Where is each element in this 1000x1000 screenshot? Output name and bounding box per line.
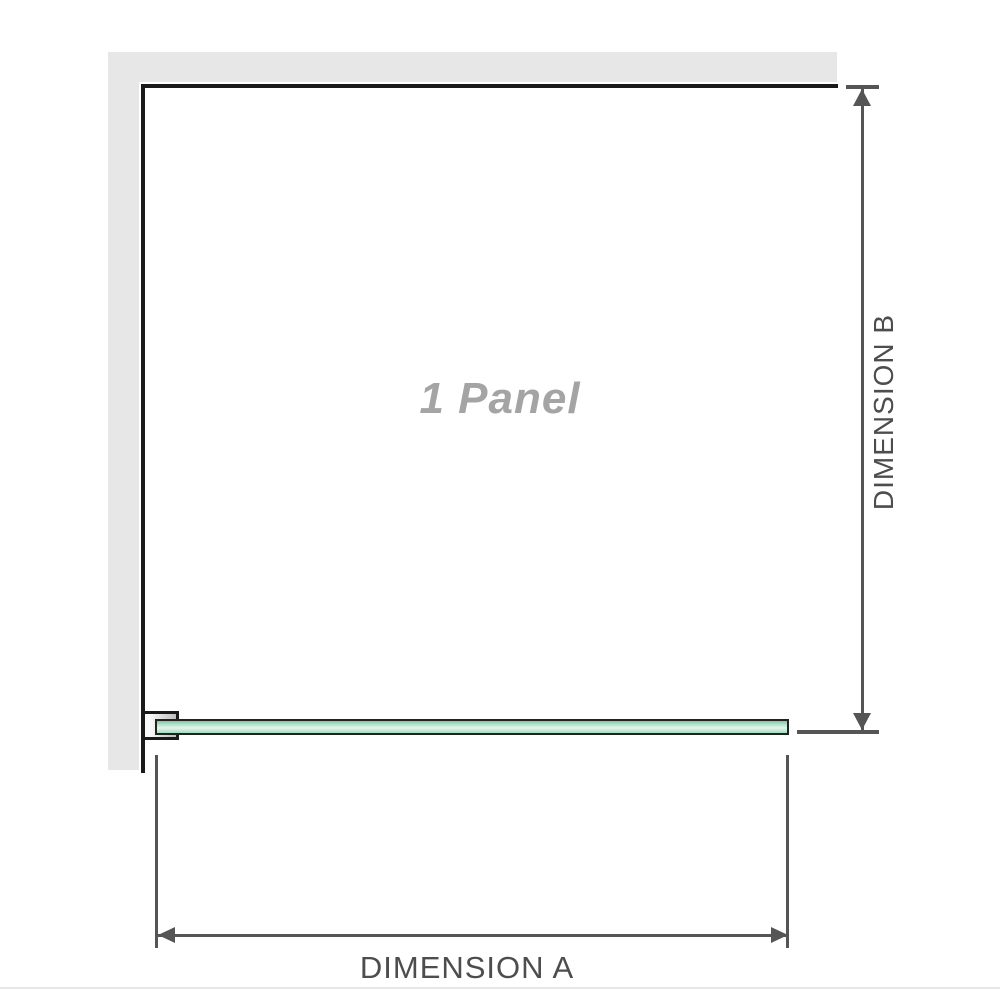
- dimension-a-right-extension-line: [786, 755, 789, 948]
- dimension-b-bottom-tick: [797, 730, 879, 734]
- panel-count-watermark: 1 Panel: [419, 374, 580, 424]
- panel-frame-left-edge: [141, 84, 145, 773]
- arrow-up-icon: [853, 89, 871, 106]
- panel-frame-top-edge: [141, 84, 838, 88]
- glass-panel: [155, 719, 789, 735]
- dimension-a-left-extension-line: [155, 755, 158, 948]
- wall-left: [108, 52, 139, 770]
- arrow-down-icon: [853, 713, 871, 730]
- arrow-left-icon: [158, 927, 175, 943]
- shower-panel-diagram: 1 Panel DIMENSION B DIMENSION A: [0, 0, 1000, 1000]
- bottom-divider: [0, 987, 1000, 989]
- dimension-a-line: [158, 934, 788, 937]
- dimension-b-label: DIMENSION B: [868, 314, 900, 510]
- dimension-b-line: [861, 88, 864, 731]
- dimension-a-label: DIMENSION A: [360, 950, 574, 986]
- wall-top: [108, 52, 837, 82]
- arrow-right-icon: [771, 927, 788, 943]
